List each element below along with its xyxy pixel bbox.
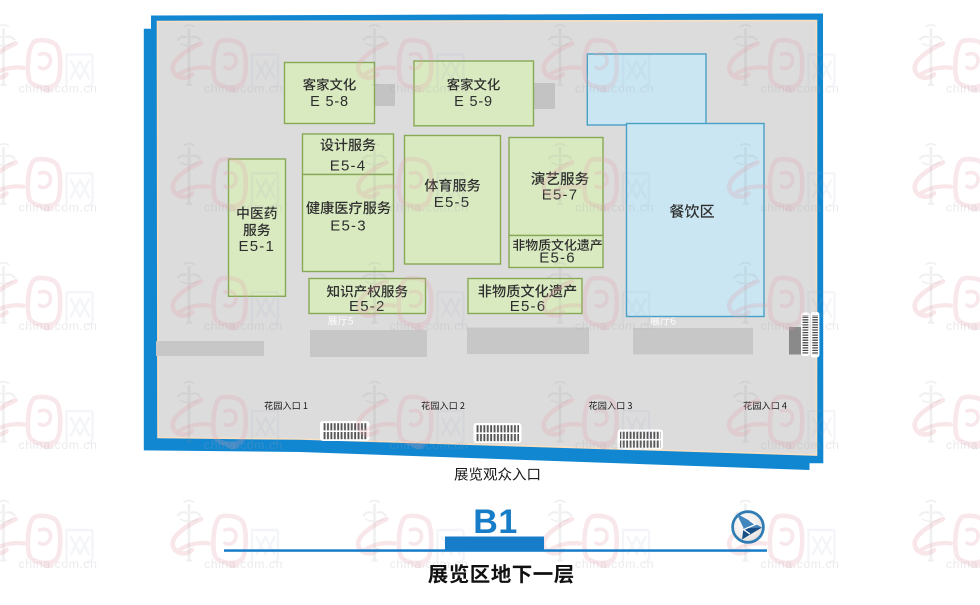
svg-text:B1: B1 [473,503,517,541]
svg-text:E 5-8: E 5-8 [310,94,349,110]
svg-text:E5-4: E5-4 [330,157,367,174]
svg-text:E 5-9: E 5-9 [454,94,493,110]
svg-text:E5-3: E5-3 [330,218,367,235]
svg-text:E5-6: E5-6 [510,298,547,315]
svg-text:E5-1: E5-1 [239,238,276,255]
